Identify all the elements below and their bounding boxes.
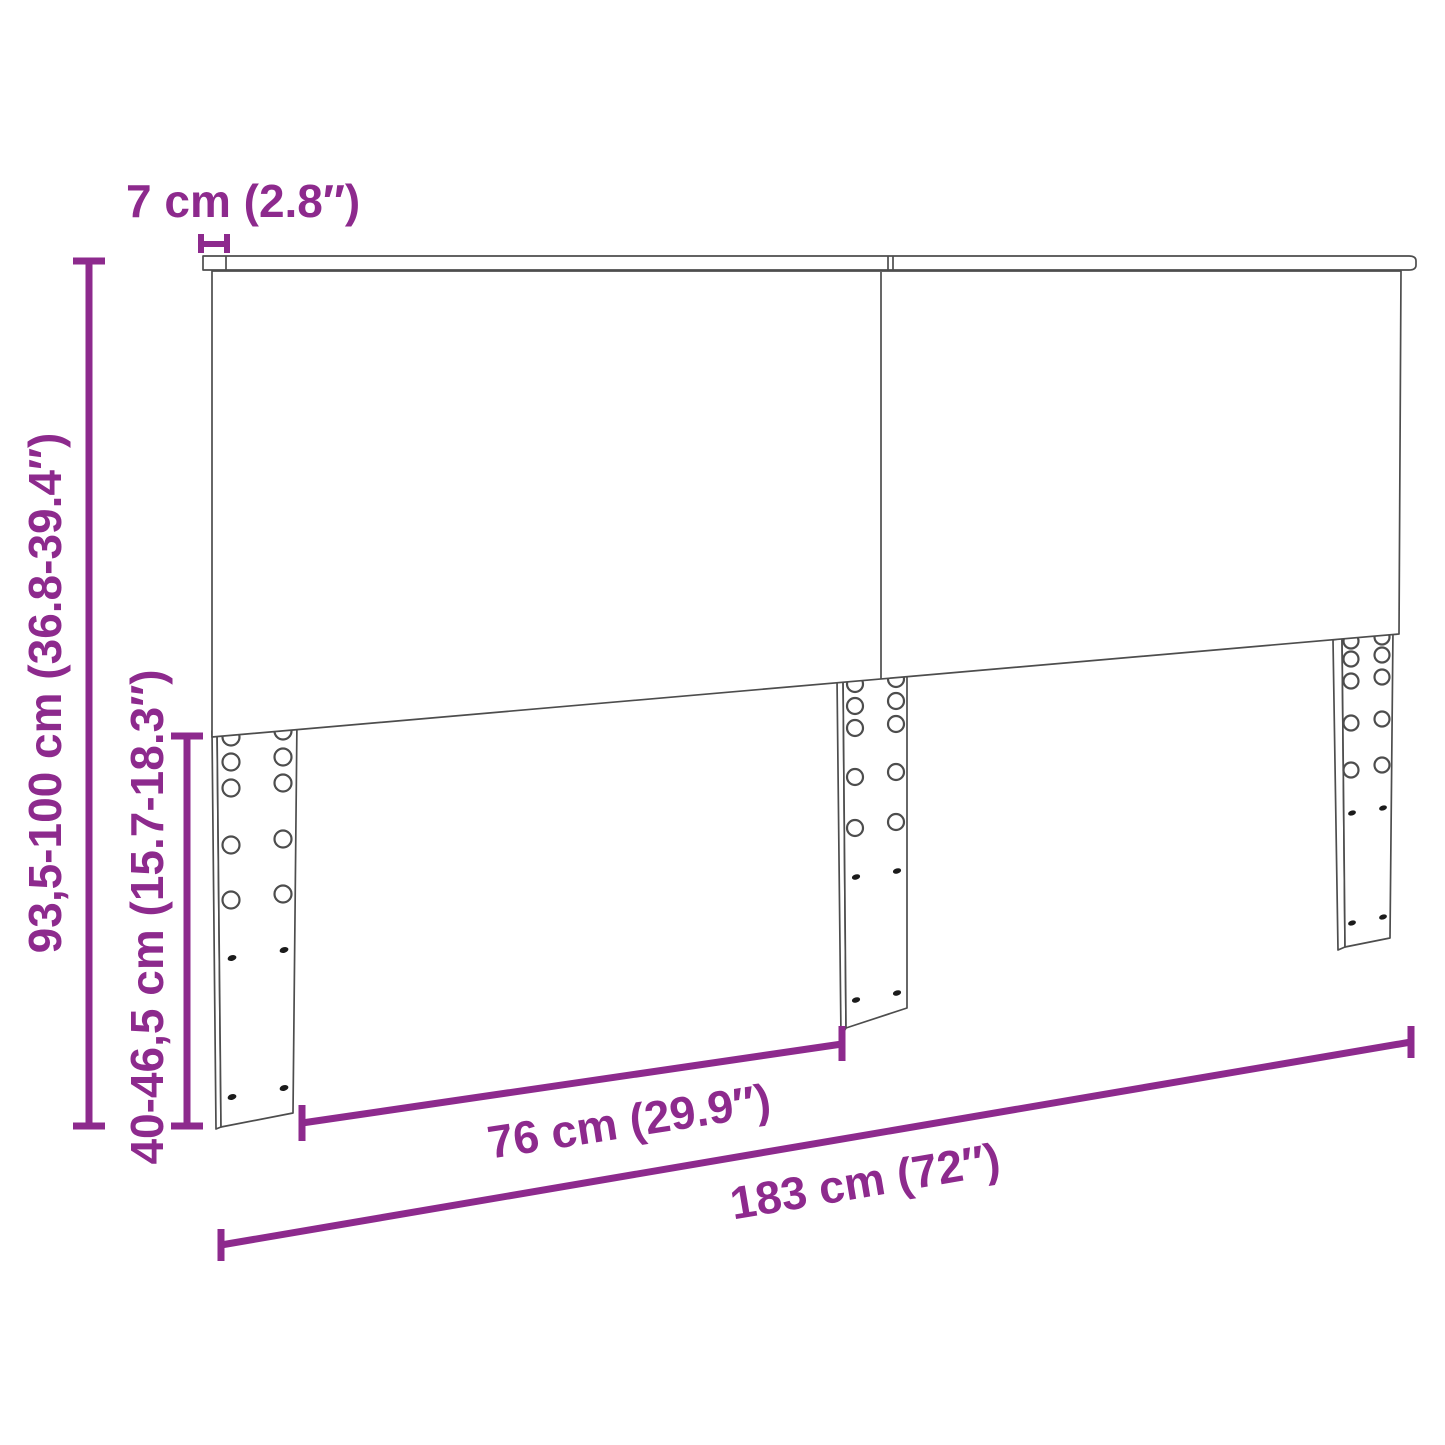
leg-right-front-face	[1342, 630, 1393, 947]
top-rail-face	[203, 256, 1416, 270]
headboard-top-rail	[203, 256, 1416, 270]
leg-middle	[837, 667, 907, 1037]
dim-leg-height-label: 40-46,5 cm (15.7-18.3″)	[124, 669, 170, 1164]
dim-total-height-label: 93,5-100 cm (36.8-39.4″)	[22, 433, 68, 954]
leg-left	[212, 719, 297, 1129]
panel-face	[212, 271, 1401, 737]
leg-right	[1333, 630, 1393, 951]
headboard-panel	[212, 271, 1401, 737]
dim-total-width-line	[221, 1026, 1411, 1261]
dim-thickness-label: 7 cm (2.8″)	[126, 178, 360, 224]
diagram-canvas: 7 cm (2.8″) 93,5-100 cm (36.8-39.4″) 40-…	[0, 0, 1445, 1445]
dim-thickness-marker	[201, 234, 227, 253]
dim-total-height-line	[73, 261, 105, 1126]
dim-leg-height-line	[171, 736, 203, 1126]
